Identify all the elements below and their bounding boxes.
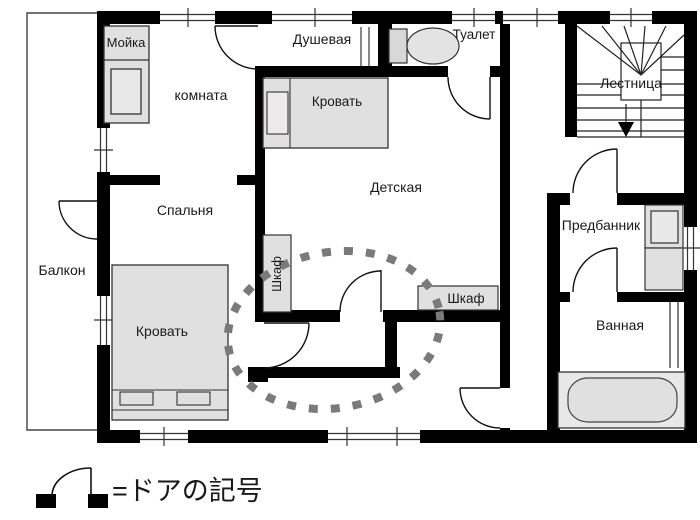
highlight-ellipse (215, 235, 453, 426)
legend-door-label: =ドアの記号 (112, 476, 263, 506)
label-balkon: Балкон (39, 262, 86, 278)
door-balcony (59, 201, 97, 239)
door-hall (460, 388, 500, 428)
label-vannaya: Ванная (596, 317, 644, 333)
stairs-down-arrow (618, 122, 634, 137)
label-bed-master: Кровать (136, 323, 188, 339)
label-bed-nursery: Кровать (312, 94, 362, 109)
label-detskaya: Детская (370, 179, 422, 195)
shower-partition (361, 27, 369, 66)
legend: =ドアの記号 (36, 468, 263, 508)
label-wardrobe-horizontal: Шкаф (447, 291, 484, 306)
label-tualet: Туалет (453, 27, 496, 42)
label-lestnitsa: Лестница (600, 75, 662, 91)
door-predbannik-top (573, 149, 617, 193)
floor-plan: Мойка комната Душевая Туалет Лестница Кр… (0, 0, 700, 520)
label-moyka: Мойка (107, 35, 146, 50)
label-dushevaya: Душевая (293, 31, 351, 47)
door-predbannik-bottom (573, 248, 617, 292)
door-nursery (340, 270, 381, 312)
label-komnata: комната (175, 87, 228, 103)
bath-duct (670, 302, 678, 368)
balcony-outline (27, 13, 97, 430)
door-bedroom (264, 323, 309, 368)
bathtub-icon (558, 372, 685, 428)
toilet-icon (389, 28, 459, 64)
door-shower (215, 26, 258, 69)
door-toilet (448, 77, 490, 119)
heater-icon (645, 205, 683, 290)
door-legend-icon (36, 468, 108, 508)
bed-master (112, 265, 228, 420)
bed-nursery (263, 78, 388, 148)
label-wardrobe-vertical: Шкаф (269, 256, 284, 292)
label-predbannik: Предбанник (562, 217, 641, 233)
label-spalnya: Спальня (157, 202, 213, 218)
